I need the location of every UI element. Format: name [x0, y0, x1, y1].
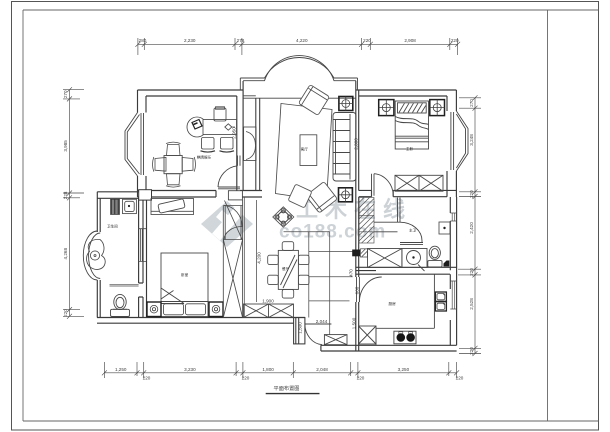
svg-text:4,268: 4,268 [63, 248, 68, 260]
svg-text:220: 220 [357, 376, 365, 381]
svg-text:4,220: 4,220 [296, 38, 308, 43]
svg-text:厨房: 厨房 [389, 301, 397, 306]
svg-text:2,048: 2,048 [316, 367, 328, 372]
svg-text:220: 220 [469, 268, 474, 276]
svg-text:1,250: 1,250 [115, 367, 127, 372]
svg-text:2,300: 2,300 [354, 138, 359, 150]
svg-text:卫生间: 卫生间 [107, 224, 118, 229]
svg-text:2,908: 2,908 [404, 38, 416, 43]
svg-text:220: 220 [469, 347, 474, 355]
svg-text:220: 220 [363, 38, 371, 43]
svg-text:228: 228 [63, 191, 68, 199]
svg-text:3,985: 3,985 [63, 140, 68, 152]
svg-text:600: 600 [355, 286, 360, 294]
svg-text:1,800: 1,800 [262, 367, 274, 372]
svg-text:4,200: 4,200 [257, 252, 262, 264]
svg-text:餐厅: 餐厅 [282, 266, 290, 271]
svg-text:主卫: 主卫 [409, 228, 417, 233]
svg-text:2,420: 2,420 [469, 222, 474, 234]
svg-text:2,230: 2,230 [184, 38, 196, 43]
svg-text:平面布置图: 平面布置图 [274, 384, 300, 392]
svg-text:220: 220 [456, 376, 464, 381]
svg-text:1,900: 1,900 [262, 299, 274, 304]
svg-text:220: 220 [63, 309, 68, 317]
svg-text:2,950: 2,950 [232, 127, 237, 139]
svg-text:280: 280 [139, 38, 147, 43]
svg-text:220: 220 [143, 376, 151, 381]
svg-text:主卧: 主卧 [406, 146, 414, 151]
svg-text:客厅: 客厅 [301, 146, 309, 151]
svg-text:470: 470 [349, 269, 354, 277]
svg-text:卧室: 卧室 [181, 272, 189, 277]
svg-text:3,250: 3,250 [398, 367, 410, 372]
svg-text:278: 278 [237, 38, 245, 43]
svg-text:棋牌娱乐: 棋牌娱乐 [197, 155, 212, 160]
svg-text:2,528: 2,528 [469, 298, 474, 310]
svg-text:3,230: 3,230 [184, 367, 196, 372]
svg-text:1,500: 1,500 [352, 317, 357, 329]
svg-text:270: 270 [63, 90, 68, 98]
svg-text:2,044: 2,044 [316, 319, 328, 324]
svg-text:220: 220 [451, 38, 459, 43]
svg-text:220: 220 [469, 190, 474, 198]
svg-text:270: 270 [469, 99, 474, 107]
svg-text:1,500: 1,500 [298, 322, 303, 334]
svg-text:3,248: 3,248 [469, 134, 474, 146]
svg-text:220: 220 [242, 376, 250, 381]
